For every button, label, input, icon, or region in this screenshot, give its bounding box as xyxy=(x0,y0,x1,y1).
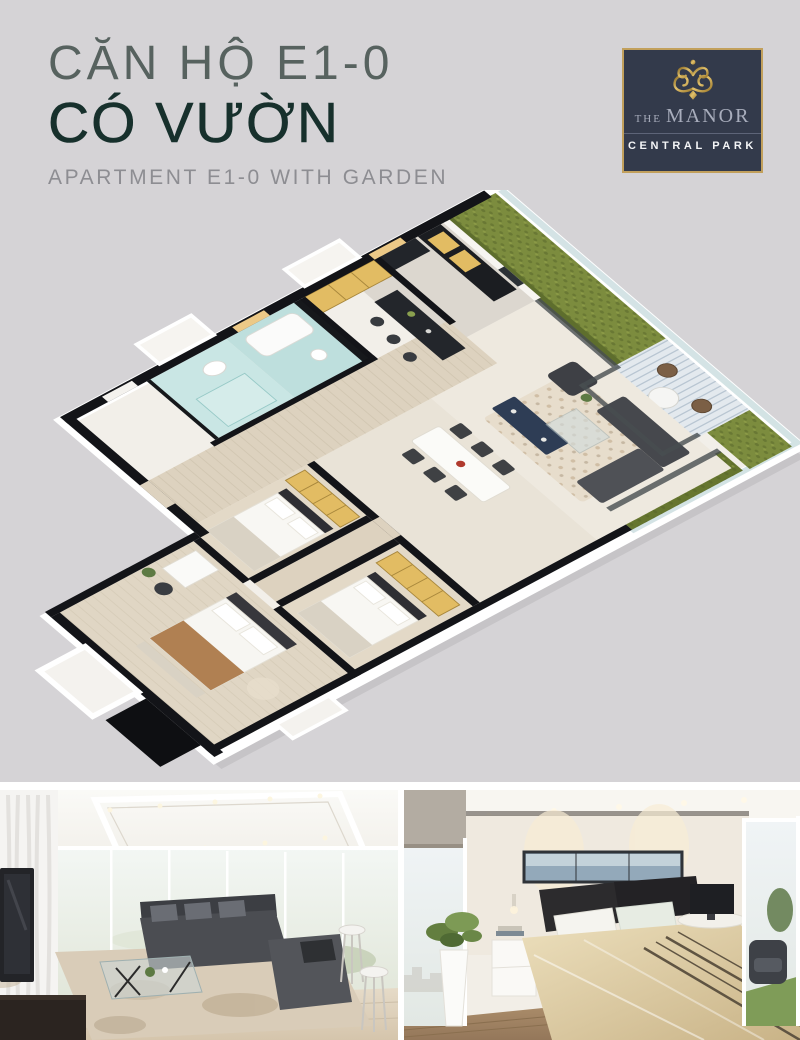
bedroom-photo xyxy=(404,790,800,1040)
title-subtitle-english: APARTMENT E1-0 WITH GARDEN xyxy=(48,167,448,188)
title-line-1: CĂN HỘ E1-0 xyxy=(48,40,448,88)
logo-brand-text: THEMANOR xyxy=(635,105,751,128)
tv-screen xyxy=(0,868,34,982)
panoramic-art-frame xyxy=(524,852,682,882)
bedroom-render xyxy=(404,790,800,1040)
title-line-2: CÓ VƯỜN xyxy=(48,95,448,152)
living-room-photo xyxy=(0,790,398,1040)
logo-divider-line xyxy=(624,133,761,134)
media-cabinet xyxy=(0,995,86,1040)
logo-tagline: CENTRAL PARK xyxy=(628,140,757,152)
living-room-render xyxy=(0,790,398,1040)
brochure-top-panel: CĂN HỘ E1-0 CÓ VƯỜN APARTMENT E1-0 WITH … xyxy=(0,0,800,782)
logo-brand-prefix: THE xyxy=(635,113,662,125)
roller-shade xyxy=(404,790,466,846)
gold-scroll-ornament-icon xyxy=(669,56,717,102)
interior-photos-row xyxy=(0,790,800,1040)
right-glass-doors xyxy=(742,816,800,1026)
coffee-table xyxy=(100,956,202,999)
floor-plan-illustration xyxy=(0,190,800,782)
armchair xyxy=(749,940,787,984)
page-title: CĂN HỘ E1-0 CÓ VƯỜN APARTMENT E1-0 WITH … xyxy=(48,40,448,188)
logo-brand-name: MANOR xyxy=(666,105,750,127)
the-manor-central-park-logo: THEMANOR CENTRAL PARK xyxy=(622,48,763,173)
